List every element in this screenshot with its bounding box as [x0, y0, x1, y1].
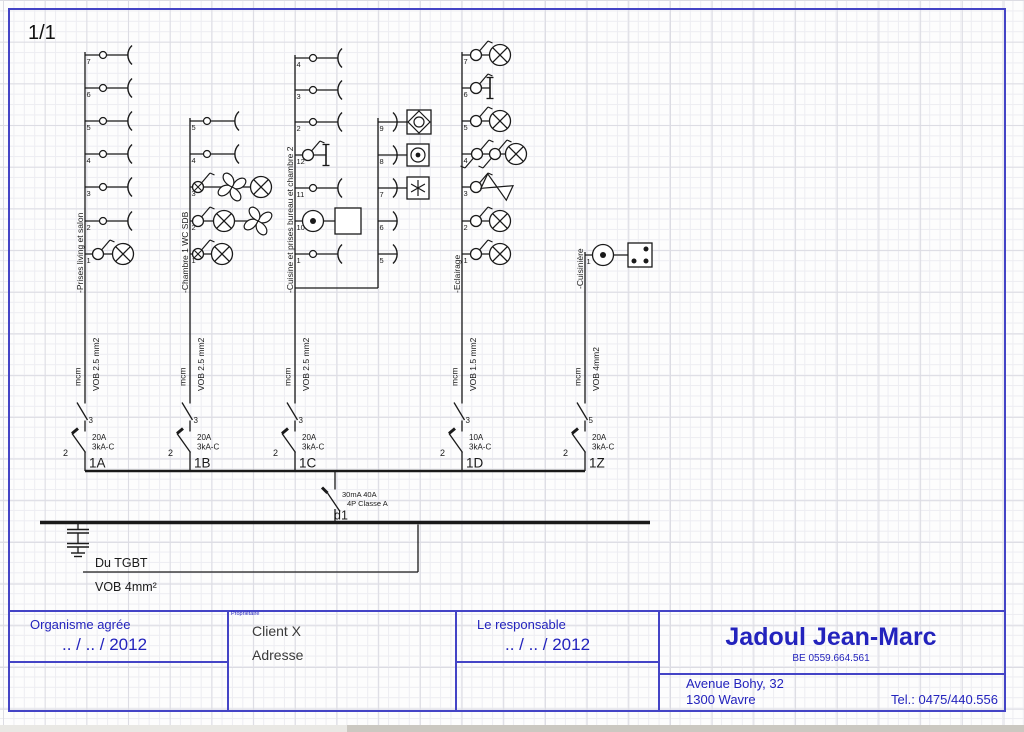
svg-text:30mA 40A: 30mA 40A: [342, 490, 377, 499]
symbol-switch: [303, 141, 325, 161]
svg-text:4: 4: [464, 156, 468, 165]
svg-text:2: 2: [87, 223, 91, 232]
symbol-switch: [193, 207, 215, 227]
svg-text:3: 3: [89, 416, 94, 425]
symbol-socket: [128, 145, 132, 164]
symbol-circle: [100, 151, 107, 158]
svg-text:-Cuisine et prises bureau et c: -Cuisine et prises bureau et chambre 2: [285, 146, 295, 293]
svg-text:3kA-C: 3kA-C: [92, 443, 114, 452]
symbol-box_star: [407, 177, 429, 199]
symbol-lamp: [490, 45, 511, 66]
svg-text:11: 11: [297, 190, 305, 199]
company-name: Jadoul Jean-Marc: [658, 623, 1004, 652]
company-vat: BE 0559.664.561: [658, 653, 1004, 664]
svg-text:7: 7: [464, 57, 468, 66]
svg-text:2: 2: [464, 223, 468, 232]
svg-text:5: 5: [192, 123, 196, 132]
svg-text:-Cuisinière: -Cuisinière: [575, 248, 585, 289]
main-distribution: 30mA 40A4P Classe Ad1: [40, 471, 650, 523]
svg-text:5: 5: [87, 123, 91, 132]
svg-text:1: 1: [87, 256, 91, 265]
client-name[interactable]: Client X: [252, 623, 301, 639]
svg-text:9: 9: [380, 124, 384, 133]
client-address[interactable]: Adresse: [252, 647, 303, 663]
svg-text:4P Classe A: 4P Classe A: [347, 499, 388, 508]
svg-text:3: 3: [194, 416, 199, 425]
svg-text:2: 2: [273, 448, 278, 458]
symbol-circle: [310, 251, 317, 258]
branch-1Z: 15220A3kA-C1Z-CuisinièremcmVOB 4mm2: [563, 243, 652, 471]
svg-text:3: 3: [464, 189, 468, 198]
symbol-motor: [303, 211, 324, 232]
svg-text:6: 6: [464, 90, 468, 99]
svg-text:VOB 4mm2: VOB 4mm2: [591, 347, 601, 391]
svg-text:mcm: mcm: [450, 368, 460, 386]
svg-text:20A: 20A: [197, 433, 212, 442]
symbol-socket: [338, 245, 342, 264]
symbol-fan: [218, 173, 247, 202]
svg-text:3: 3: [297, 92, 301, 101]
svg-text:3kA-C: 3kA-C: [592, 443, 614, 452]
symbol-socket: [235, 145, 239, 164]
symbol-socket: [338, 113, 342, 132]
branch-1C: 4321211101987653220A3kA-C1C-Cuisine et p…: [273, 49, 431, 472]
symbol-circle: [100, 218, 107, 225]
svg-text:2: 2: [563, 448, 568, 458]
symbol-lamp: [490, 111, 511, 132]
symbol-socket: [338, 81, 342, 100]
symbol-circle: [310, 119, 317, 126]
svg-text:20A: 20A: [92, 433, 107, 442]
responsable-label: Le responsable: [477, 617, 566, 632]
branch-1A: 76543213220A3kA-C1A-Prises living et sal…: [63, 46, 134, 472]
svg-text:6: 6: [380, 223, 384, 232]
svg-text:7: 7: [87, 57, 91, 66]
svg-text:VOB 1.5 mm2: VOB 1.5 mm2: [468, 337, 478, 391]
svg-text:20A: 20A: [302, 433, 317, 442]
company-address-line2: 1300 Wavre: [686, 692, 756, 707]
company-address-line1: Avenue Bohy, 32: [686, 676, 784, 691]
svg-text:5: 5: [589, 416, 594, 425]
svg-text:3: 3: [87, 189, 91, 198]
symbol-box: [335, 208, 361, 234]
symbol-motor: [593, 245, 614, 266]
svg-text:5: 5: [380, 256, 384, 265]
supply-feed: Du TGBTVOB 4mm²: [83, 525, 418, 595]
symbol-lamp: [490, 244, 511, 265]
svg-text:7: 7: [380, 190, 384, 199]
symbol-socket: [128, 212, 132, 231]
svg-text:1Z: 1Z: [589, 456, 605, 471]
svg-text:1: 1: [587, 257, 591, 266]
symbol-lamp: [113, 244, 134, 265]
svg-text:-Chambre 1 WC SDB: -Chambre 1 WC SDB: [180, 211, 190, 293]
page-border-top: [8, 8, 1006, 10]
svg-text:VOB 2.5 mm2: VOB 2.5 mm2: [196, 337, 206, 391]
symbol-socket: [338, 49, 342, 68]
symbol-circle: [100, 118, 107, 125]
schematic-page: 76543213220A3kA-C1A-Prises living et sal…: [0, 0, 1024, 732]
symbol-switchx: [193, 173, 215, 193]
symbol-switch: [93, 240, 115, 260]
svg-text:Du TGBT: Du TGBT: [95, 556, 148, 570]
taskbar-edge: [347, 725, 1024, 732]
svg-text:mcm: mcm: [283, 368, 293, 386]
symbol-socket: [338, 179, 342, 198]
svg-text:1A: 1A: [89, 456, 106, 471]
svg-text:mcm: mcm: [178, 368, 188, 386]
company-divider: [658, 673, 1004, 675]
organisme-label: Organisme agrée: [30, 617, 130, 632]
responsable-date[interactable]: .. / .. / 2012: [505, 635, 590, 655]
svg-text:2: 2: [440, 448, 445, 458]
svg-text:1B: 1B: [194, 456, 211, 471]
svg-text:10A: 10A: [469, 433, 484, 442]
symbol-circle: [310, 55, 317, 62]
symbol-box_circle: [407, 144, 429, 166]
svg-text:3kA-C: 3kA-C: [469, 443, 491, 452]
svg-text:1: 1: [464, 256, 468, 265]
symbol-circle: [204, 151, 211, 158]
symbol-socket: [128, 112, 132, 131]
symbol-lamp: [506, 144, 527, 165]
svg-text:-Prises living et salon: -Prises living et salon: [75, 212, 85, 293]
symbol-socket: [128, 178, 132, 197]
svg-text:4: 4: [297, 60, 301, 69]
branch-1B: 543213220A3kA-C1B-Chambre 1 WC SDBmcmVOB…: [168, 112, 272, 472]
symbol-box_dots: [628, 243, 652, 267]
svg-text:3: 3: [466, 416, 471, 425]
symbol-circle: [310, 87, 317, 94]
symbol-socket: [128, 46, 132, 65]
page-number: 1/1: [28, 22, 56, 45]
svg-text:VOB 2.5 mm2: VOB 2.5 mm2: [91, 337, 101, 391]
svg-text:2: 2: [63, 448, 68, 458]
svg-text:d1: d1: [334, 509, 348, 523]
svg-text:5: 5: [464, 123, 468, 132]
organisme-divider: [8, 661, 227, 663]
svg-text:6: 6: [87, 90, 91, 99]
symbol-box_diamond: [407, 110, 431, 134]
symbol-circle: [100, 52, 107, 59]
svg-text:20A: 20A: [592, 433, 607, 442]
titleblock-divider-1: [227, 610, 229, 711]
titleblock-top-line: [8, 610, 1004, 612]
svg-text:mcm: mcm: [573, 368, 583, 386]
symbol-circle: [100, 184, 107, 191]
symbol-socket: [235, 112, 239, 131]
svg-text:1C: 1C: [299, 456, 317, 471]
responsable-divider: [455, 661, 658, 663]
symbol-bowtie: [481, 174, 513, 200]
symbol-lamp: [490, 211, 511, 232]
svg-text:3: 3: [299, 416, 304, 425]
page-border-bottom: [8, 710, 1006, 712]
svg-text:1: 1: [297, 256, 301, 265]
svg-text:-Eclairage: -Eclairage: [452, 254, 462, 293]
earth-symbol: [67, 524, 89, 557]
symbol-lamp: [251, 177, 272, 198]
svg-text:2: 2: [297, 124, 301, 133]
svg-text:3kA-C: 3kA-C: [197, 443, 219, 452]
svg-text:4: 4: [87, 156, 91, 165]
symbol-lamp: [212, 244, 233, 265]
svg-text:2: 2: [168, 448, 173, 458]
symbol-circle: [310, 185, 317, 192]
symbol-socket: [128, 79, 132, 98]
organisme-date[interactable]: .. / .. / 2012: [62, 635, 147, 655]
svg-text:3kA-C: 3kA-C: [302, 443, 324, 452]
branch-1D: 76543213210A3kA-C1D-EclairagemcmVOB 1.5 …: [440, 41, 527, 471]
svg-text:8: 8: [380, 157, 384, 166]
proprietaire-label: Propriétaire: [231, 611, 259, 617]
svg-text:VOB 2.5 mm2: VOB 2.5 mm2: [301, 337, 311, 391]
symbol-circle: [204, 118, 211, 125]
svg-text:mcm: mcm: [73, 368, 83, 386]
page-border-right: [1004, 8, 1006, 712]
page-border-left: [8, 8, 10, 712]
symbol-fan: [244, 207, 273, 236]
svg-text:4: 4: [192, 156, 196, 165]
company-phone: Tel.: 0475/440.556: [780, 692, 998, 707]
symbol-circle: [100, 85, 107, 92]
svg-text:1D: 1D: [466, 456, 484, 471]
svg-text:VOB 4mm²: VOB 4mm²: [95, 580, 157, 594]
symbol-lamp: [214, 211, 235, 232]
